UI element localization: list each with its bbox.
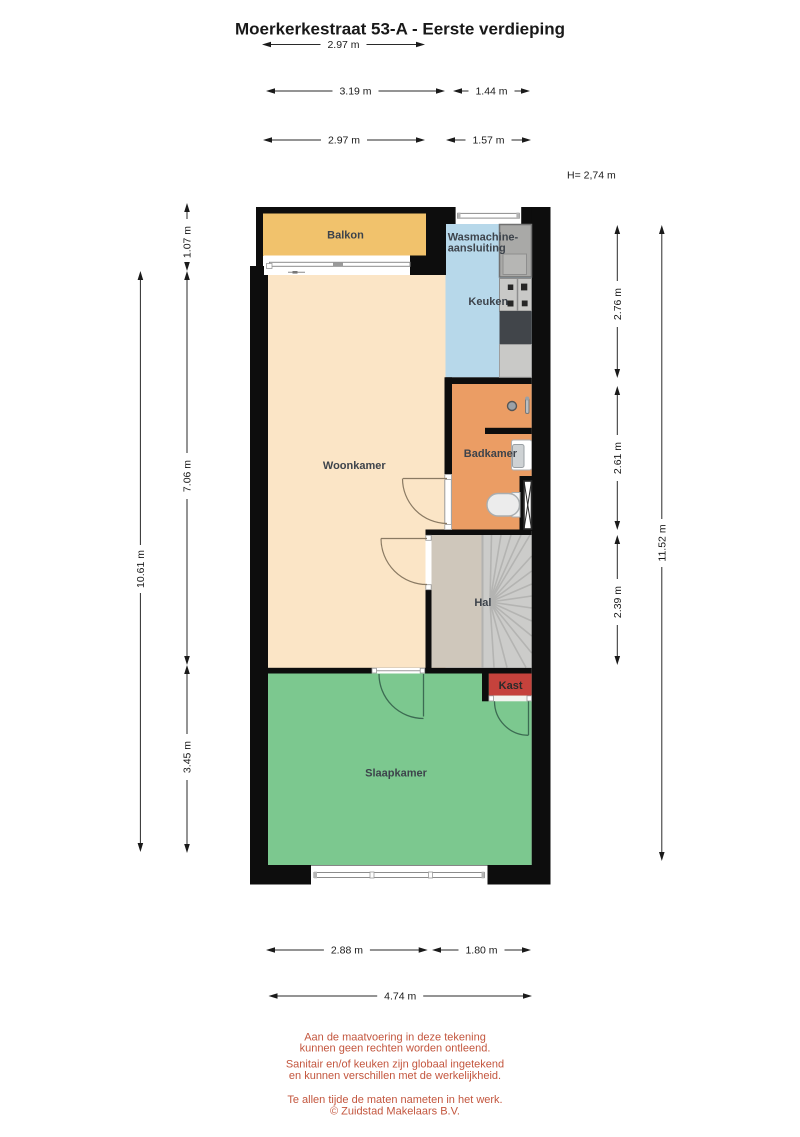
svg-text:2.88 m: 2.88 m (331, 945, 363, 957)
svg-text:en kunnen verschillen met de w: en kunnen verschillen met de werkelijkhe… (289, 1070, 501, 1082)
svg-text:7.06 m: 7.06 m (182, 460, 194, 492)
svg-text:Keuken: Keuken (468, 296, 508, 308)
svg-text:© Zuidstad Makelaars B.V.: © Zuidstad Makelaars B.V. (330, 1106, 460, 1118)
svg-text:Moerkerkestraat 53-A - Eerste: Moerkerkestraat 53-A - Eerste verdieping (235, 20, 565, 39)
svg-text:10.61 m: 10.61 m (135, 550, 147, 588)
svg-text:2.61 m: 2.61 m (612, 442, 624, 474)
svg-text:Te allen tijde de maten namete: Te allen tijde de maten nameten in het w… (287, 1094, 502, 1106)
svg-text:Sanitair en/of keuken zijn glo: Sanitair en/of keuken zijn globaal inget… (286, 1059, 504, 1071)
svg-text:1.80 m: 1.80 m (465, 945, 497, 957)
svg-text:2.76 m: 2.76 m (612, 288, 624, 320)
svg-text:1.57 m: 1.57 m (472, 135, 504, 147)
svg-text:4.74 m: 4.74 m (384, 991, 416, 1003)
svg-text:2.97 m: 2.97 m (328, 135, 360, 147)
svg-text:1.07 m: 1.07 m (182, 226, 194, 258)
svg-text:Balkon: Balkon (327, 230, 364, 242)
svg-text:Slaapkamer: Slaapkamer (365, 768, 427, 780)
svg-text:11.52 m: 11.52 m (656, 524, 668, 561)
svg-text:2.97 m: 2.97 m (327, 39, 359, 51)
svg-text:3.19 m: 3.19 m (339, 86, 371, 98)
svg-text:kunnen geen rechten worden ont: kunnen geen rechten worden ontleend. (300, 1043, 491, 1055)
svg-text:1.44 m: 1.44 m (475, 86, 507, 98)
svg-text:aansluiting: aansluiting (448, 243, 506, 255)
svg-text:Woonkamer: Woonkamer (323, 460, 386, 472)
svg-text:2.39 m: 2.39 m (612, 586, 624, 618)
svg-text:Kast: Kast (499, 680, 523, 692)
svg-text:3.45 m: 3.45 m (182, 741, 194, 773)
svg-text:Badkamer: Badkamer (464, 448, 518, 460)
svg-text:H= 2,74 m: H= 2,74 m (567, 170, 616, 182)
svg-text:Hal: Hal (474, 597, 491, 609)
